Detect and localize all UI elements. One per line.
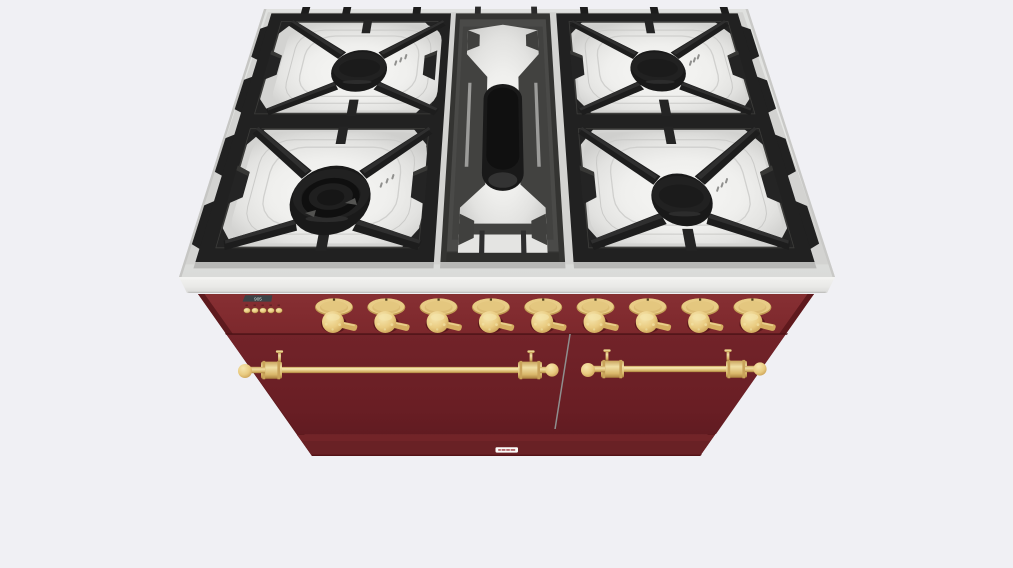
- svg-text:905: 905: [254, 297, 262, 302]
